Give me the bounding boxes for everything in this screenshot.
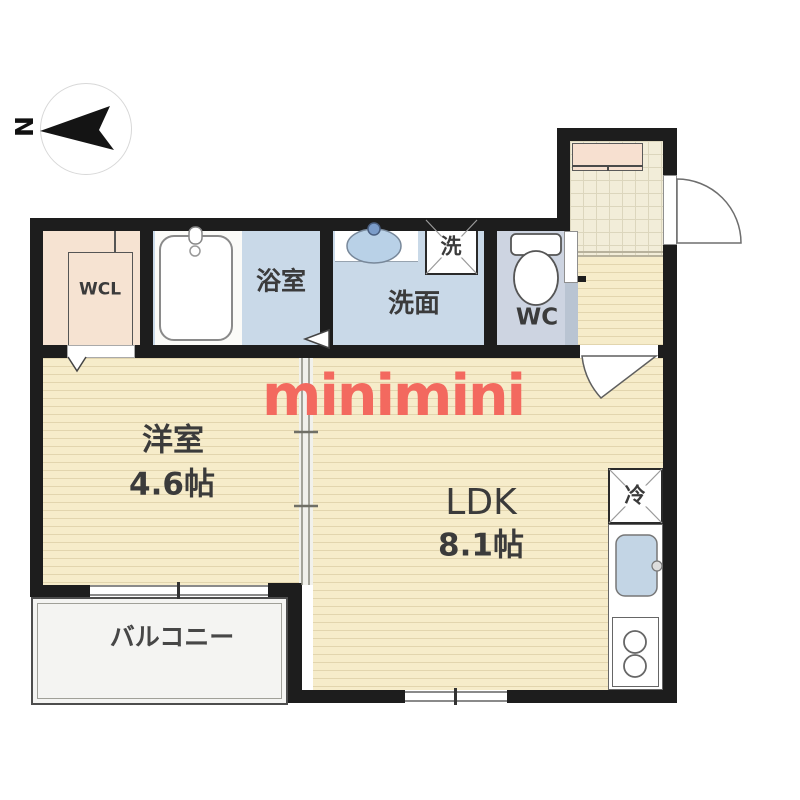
wc-door-leaf [564, 231, 578, 283]
western-room-label: 洋室 [142, 426, 204, 457]
western-room-size: 4.6帖 [129, 470, 215, 501]
wall-ldk-bottom-left [288, 690, 405, 703]
wall-bath-washroom [320, 231, 333, 345]
wall-right-upper [663, 128, 677, 175]
wall-right-main [663, 245, 677, 703]
hallway-floor [578, 256, 663, 345]
washer-label: 洗 [440, 237, 463, 258]
washbasin-counter [335, 231, 418, 262]
hall-door-opening [580, 345, 658, 358]
wall-top-main [30, 218, 570, 231]
stove [612, 617, 659, 687]
ldk-size: 8.1帖 [438, 531, 524, 562]
washroom-label: 洗面 [388, 291, 440, 317]
bathtub-backing [155, 231, 242, 345]
ldk-label: LDK [445, 485, 516, 521]
wall-midstrip-a [30, 345, 67, 358]
ldk-window-tick [454, 688, 457, 705]
balcony-window-tick [177, 582, 180, 599]
entrance-step-line-1 [570, 251, 663, 253]
wcl-divider-line [114, 231, 116, 252]
wcl-door-opening [67, 345, 135, 358]
wall-entrance-top [557, 128, 677, 141]
balcony-label: バルコニー [110, 625, 235, 650]
floorplan-canvas: N [0, 0, 800, 800]
wall-midstrip-b [135, 345, 580, 358]
wall-ldk-balcony [288, 585, 302, 703]
wall-wcl-bath [140, 231, 153, 345]
bathroom-label: 浴室 [256, 269, 306, 294]
wall-left [30, 231, 43, 597]
entrance-step-line-2 [570, 255, 663, 257]
wall-western-bottom-left [30, 585, 90, 597]
minimini-watermark: minimini [262, 368, 524, 425]
wc-label: WC [516, 307, 558, 330]
wall-ldk-bottom-right [507, 690, 677, 703]
entrance-door-swing [677, 179, 741, 243]
shoe-cabinet-tick [607, 165, 609, 171]
wcl-label: WCL [79, 282, 121, 299]
compass-circle [40, 83, 132, 175]
entrance-door-leaf [663, 175, 677, 245]
wall-washroom-wc [484, 231, 497, 345]
wall-western-bottom-right [268, 583, 302, 597]
refrigerator-label: 冷 [624, 486, 647, 507]
compass-north-label: N [10, 116, 39, 137]
wall-entrance-left [557, 141, 570, 231]
